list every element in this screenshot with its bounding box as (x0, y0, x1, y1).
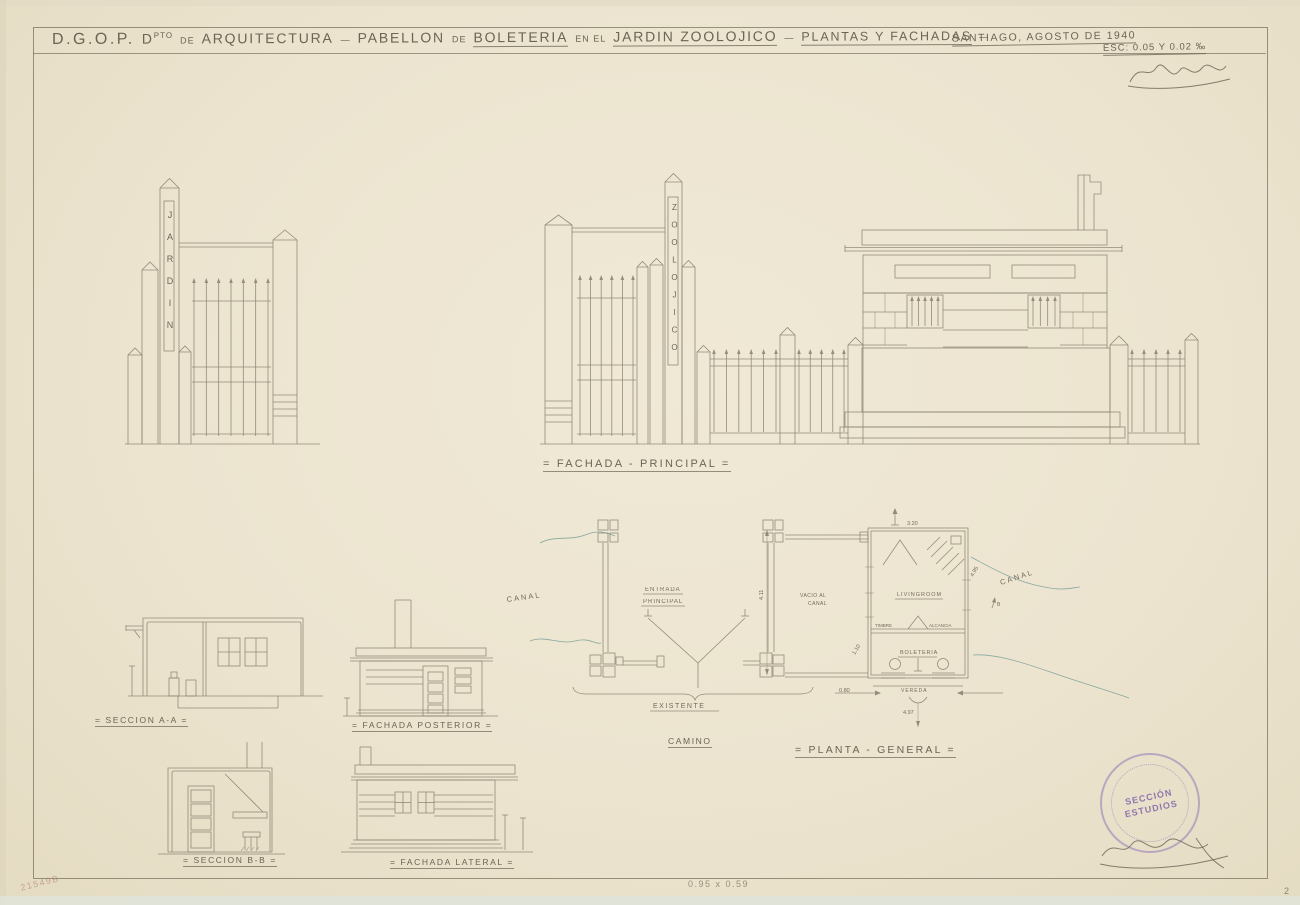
plan-label-vacio-1: VACIO AL (800, 593, 826, 599)
title-dash1: — (341, 35, 351, 45)
pavilion-elevation (840, 175, 1198, 444)
seccion-bb-drawing (150, 742, 350, 864)
title-org: D.G.O.P. (52, 31, 135, 49)
section-a-window-1 (218, 638, 240, 666)
page-number: 2 (1284, 886, 1291, 896)
plan-label-canal-left: CANAL (506, 590, 542, 604)
tower-text-zoolojico: ZOOLOJICO (667, 202, 679, 362)
plan-label-vacio-2: CANAL (808, 601, 827, 607)
title-en-el: EN EL (575, 34, 606, 44)
plan-vereda: VEREDA 4.97 (835, 686, 1003, 727)
signature-architect (1126, 54, 1234, 94)
title-dept-abbr: DPTO (142, 31, 173, 47)
signature-reviewer (1096, 828, 1236, 873)
tower-text-jardin: JARDIN (163, 206, 175, 346)
plan-dim-bottom: 4.97 (903, 710, 914, 716)
caption-seccion-bb: = SECCION B-B = (183, 855, 277, 867)
plan-dim-gate: 4.11 (759, 590, 765, 600)
paper-size-note: 0.95 x 0.59 (688, 879, 749, 889)
plan-dim-small: 0.80 (839, 688, 850, 694)
title-de1: DE (180, 35, 195, 45)
caption-fachada-principal: = FACHADA - PRINCIPAL = (543, 458, 731, 472)
plan-marker-b: B (997, 602, 1001, 608)
plan-dim-right: 4.95 (970, 566, 981, 578)
plan-label-entrada-1: ENTRADA (645, 587, 681, 593)
planta-general-drawing: CANAL CANAL ENTRADA PRINCIPAL 4.11 (495, 505, 1135, 740)
title-de2: DE (452, 34, 467, 44)
title-jardin: JARDIN ZOOLOJICO (613, 28, 777, 47)
plan-dim-top: 3.20 (907, 521, 918, 527)
title-plantas: PLANTAS Y FACHADAS (801, 29, 972, 46)
gate-zoolojico-bars (578, 275, 635, 436)
plan-entrance-lines (644, 609, 749, 688)
window-bars-1 (910, 296, 940, 326)
fachada-posterior-drawing (338, 598, 503, 726)
title-dash2: — (784, 33, 794, 43)
caption-fachada-posterior: = FACHADA POSTERIOR = (352, 720, 492, 732)
plan-dim-left: 1.10 (852, 644, 863, 656)
caption-fachada-lateral: = FACHADA LATERAL = (390, 857, 514, 869)
scanner-strip (0, 896, 1300, 905)
plan-label-timbre: TIMBRE (875, 623, 892, 628)
caption-planta-general: = PLANTA - GENERAL = (795, 744, 956, 758)
plan-label-alcancia: ALCANCIA (929, 623, 952, 628)
plan-label-canal-right: CANAL (999, 568, 1035, 587)
title-dept-name: ARQUITECTURA (202, 30, 334, 47)
plan-booth: LIVINGROOM TIMBRE ALCANCIA BOLETERIA (865, 528, 971, 678)
paper-edge-top (0, 0, 1300, 6)
plan-label-vereda: VEREDA (901, 688, 928, 694)
plan-label-room-main: LIVINGROOM (897, 592, 942, 598)
lateral-window-1 (395, 792, 411, 813)
fence-mid-bars-2 (797, 349, 846, 432)
seccion-aa-drawing (118, 596, 333, 721)
paper-edge-left (0, 0, 6, 905)
drawing-sheet: D.G.O.P. DPTO DE ARQUITECTURA — PABELLON… (0, 0, 1300, 905)
caption-camino: CAMINO (668, 736, 712, 748)
window-bars-2 (1031, 296, 1057, 326)
fachada-lateral-drawing (333, 745, 548, 870)
plan-label-entrada-2: PRINCIPAL (643, 599, 683, 605)
caption-seccion-aa: = SECCION A-A = (95, 715, 188, 727)
plan-label-boleteria: BOLETERIA (900, 650, 938, 656)
lateral-window-2 (418, 792, 434, 813)
gate-jardin-bars (192, 278, 270, 436)
title-pabellon: PABELLON (358, 29, 445, 45)
gate-zoolojico (545, 174, 848, 445)
section-a-window-2 (245, 638, 267, 666)
fence-mid-bars-1 (712, 349, 778, 432)
plan-stair (927, 536, 964, 575)
title-boleteria: BOLETERIA (473, 29, 568, 47)
plan-label-existente: EXISTENTE (653, 703, 705, 710)
gate-jardin (128, 179, 297, 445)
fence-right-bars (1130, 349, 1182, 432)
sheet-title: D.G.O.P. DPTO DE ARQUITECTURA — PABELLON… (52, 27, 989, 55)
facade-principal-drawing (80, 155, 1210, 450)
